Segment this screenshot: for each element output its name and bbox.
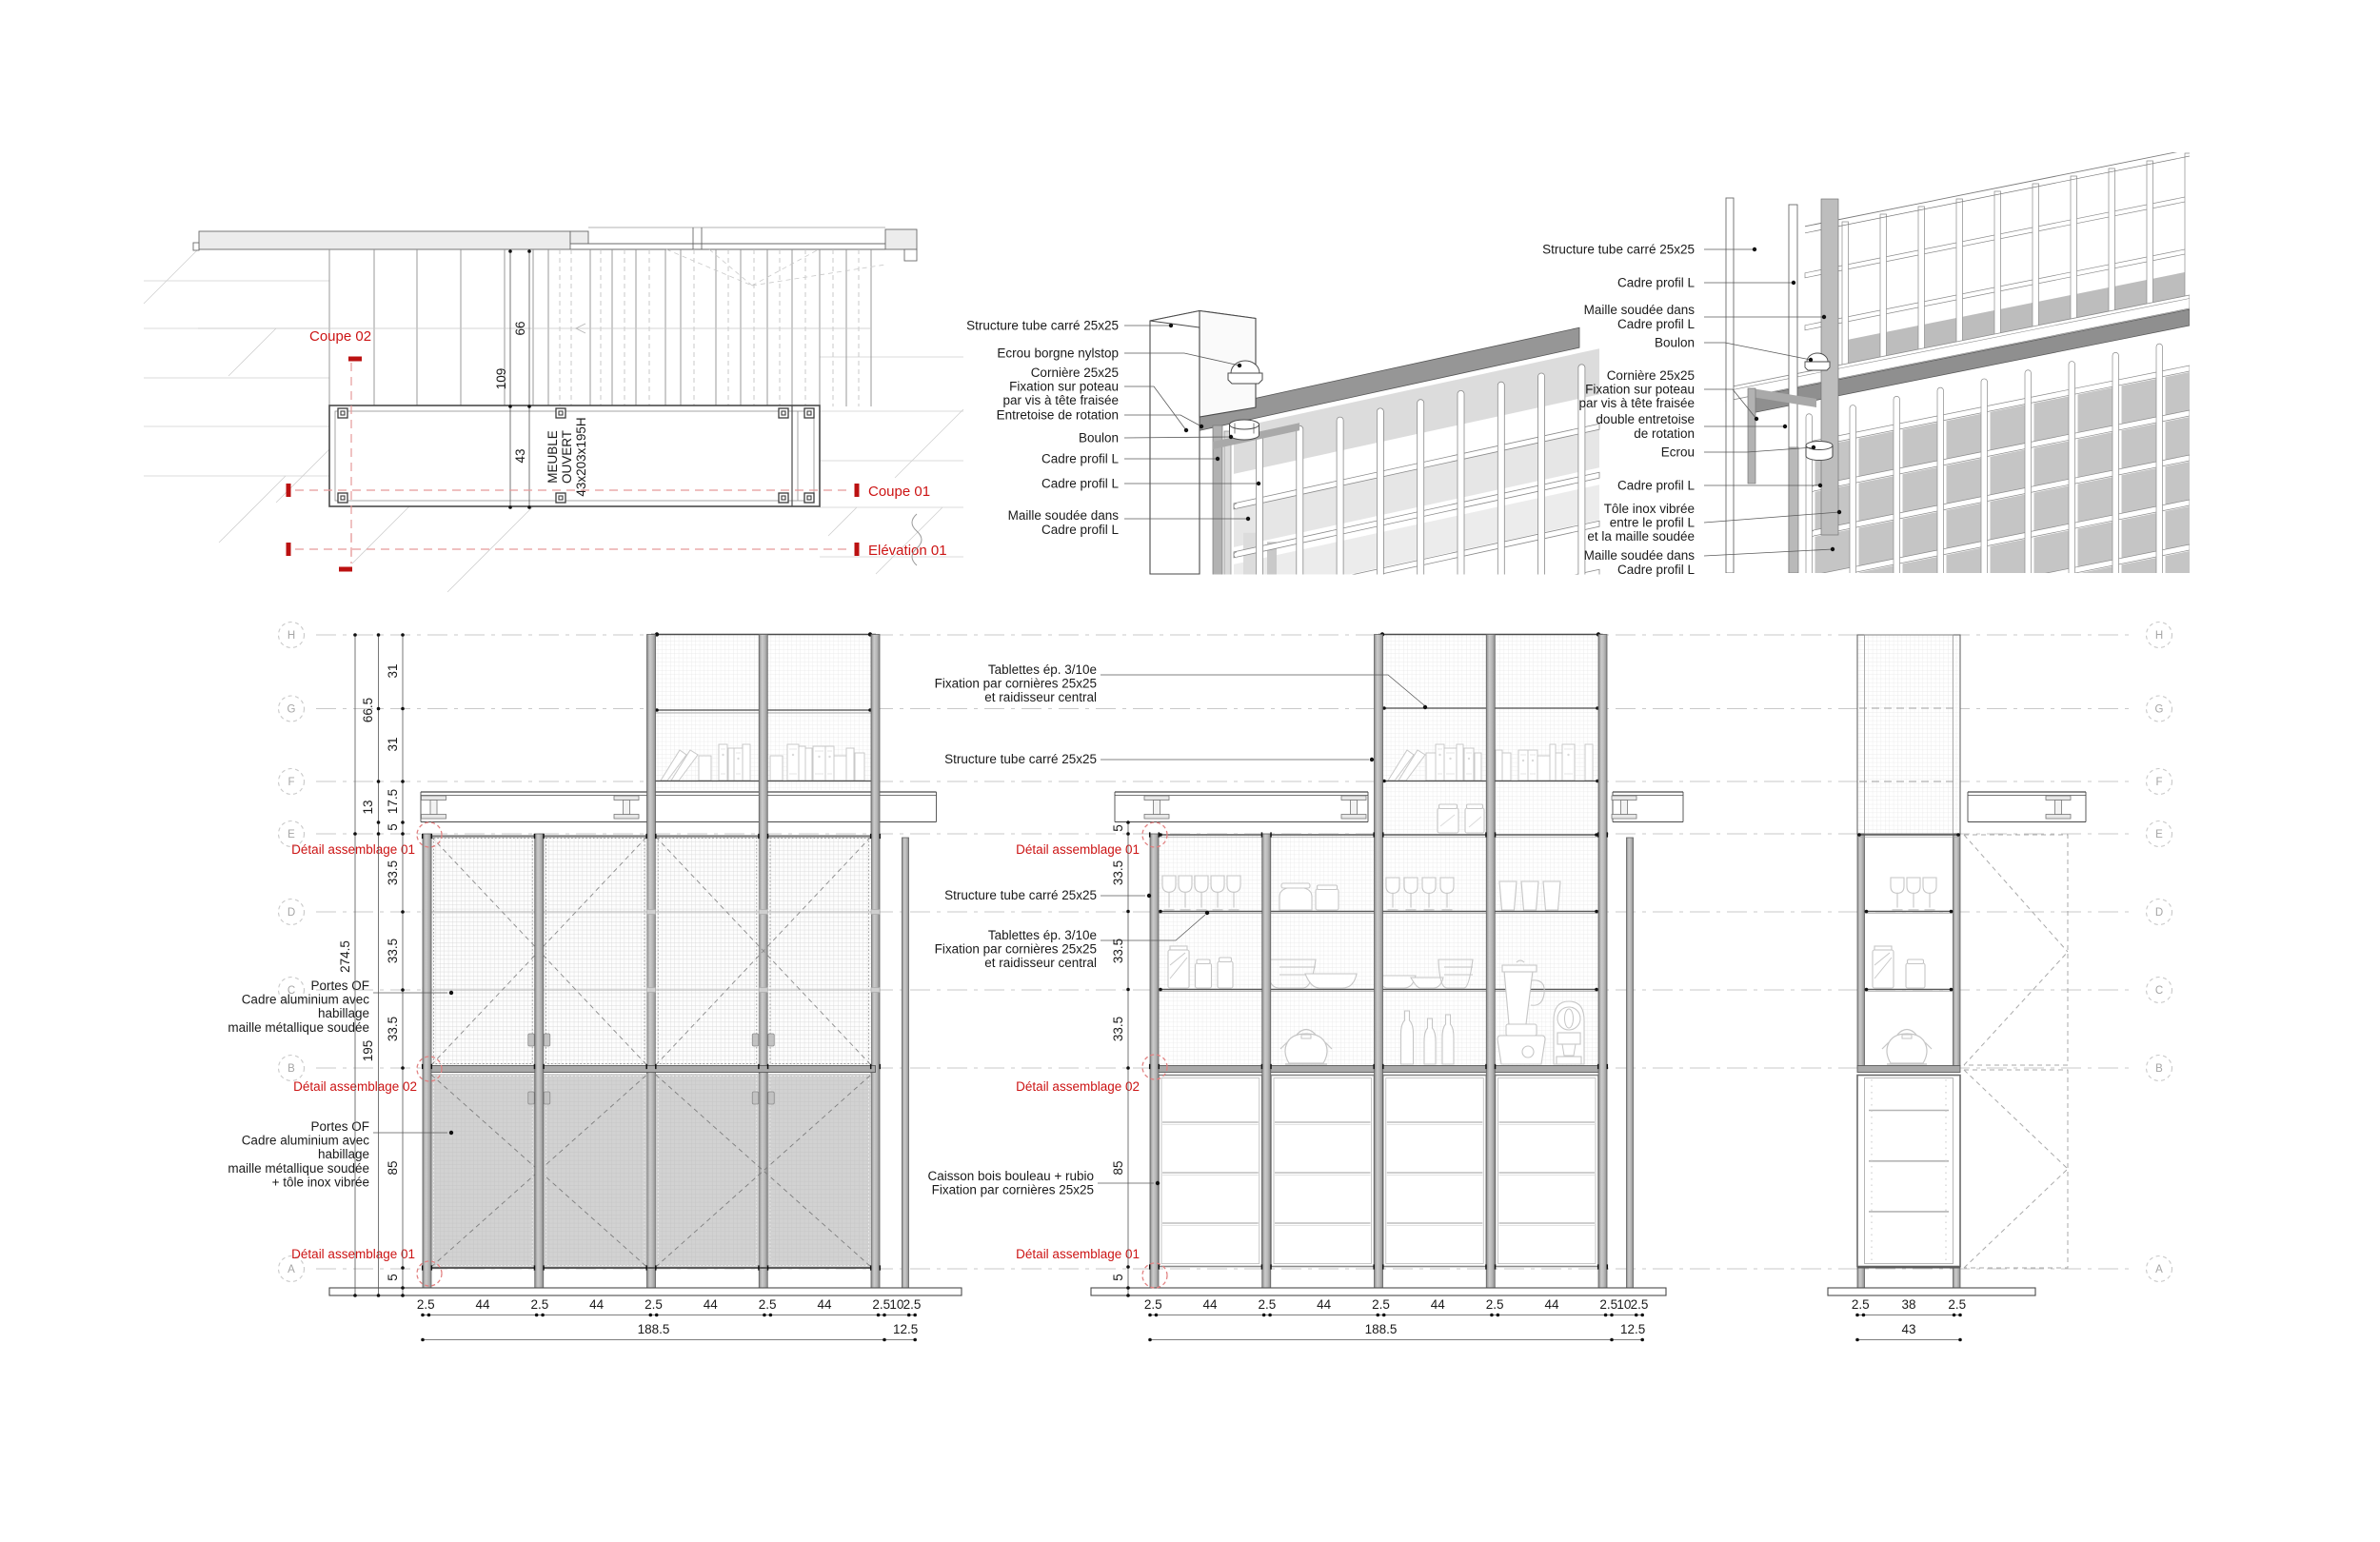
svg-text:Maille soudée dans: Maille soudée dans <box>1008 508 1120 523</box>
svg-text:12.5: 12.5 <box>893 1322 918 1336</box>
svg-text:2.5: 2.5 <box>759 1297 777 1312</box>
svg-text:G: G <box>2155 704 2164 716</box>
svg-text:E: E <box>2155 829 2163 840</box>
svg-text:Détail assemblage 01: Détail assemblage 01 <box>291 1247 415 1261</box>
svg-text:13: 13 <box>361 800 375 814</box>
svg-text:maille métallique soudée: maille métallique soudée <box>228 1161 369 1176</box>
svg-text:109: 109 <box>494 368 508 390</box>
svg-text:A: A <box>2155 1264 2163 1275</box>
svg-text:Portes OF: Portes OF <box>310 1119 369 1134</box>
svg-text:85: 85 <box>386 1160 400 1175</box>
svg-text:Boulon: Boulon <box>1079 431 1119 445</box>
svg-text:274.5: 274.5 <box>338 940 352 973</box>
svg-text:38: 38 <box>1901 1297 1915 1312</box>
svg-text:Portes OF: Portes OF <box>310 979 369 993</box>
svg-text:Détail assemblage 01: Détail assemblage 01 <box>1016 842 1140 857</box>
svg-text:D: D <box>288 907 295 919</box>
svg-text:188.5: 188.5 <box>1365 1322 1398 1336</box>
svg-text:Cadre aluminium avec: Cadre aluminium avec <box>242 1134 370 1148</box>
svg-text:G: G <box>288 704 296 716</box>
svg-text:43: 43 <box>1901 1322 1915 1336</box>
svg-text:et raidisseur central: et raidisseur central <box>984 690 1097 704</box>
svg-text:2.5: 2.5 <box>872 1297 890 1312</box>
svg-text:Maille soudée dans: Maille soudée dans <box>1584 548 1696 563</box>
svg-text:188.5: 188.5 <box>638 1322 670 1336</box>
svg-text:85: 85 <box>1111 1160 1125 1175</box>
svg-text:5: 5 <box>1111 1274 1125 1281</box>
svg-text:Tablettes ép. 3/10e: Tablettes ép. 3/10e <box>988 662 1097 677</box>
svg-text:2.5: 2.5 <box>1852 1297 1870 1312</box>
svg-text:Cadre profil L: Cadre profil L <box>1617 563 1696 577</box>
svg-text:habillage: habillage <box>318 1006 369 1020</box>
svg-text:66.5: 66.5 <box>361 698 375 722</box>
svg-text:B: B <box>2155 1063 2163 1075</box>
svg-text:2.5: 2.5 <box>417 1297 435 1312</box>
svg-text:Structure tube carré 25x25: Structure tube carré 25x25 <box>966 319 1119 333</box>
svg-text:D: D <box>2155 907 2163 919</box>
svg-text:Elévation 01: Elévation 01 <box>868 543 947 559</box>
svg-text:A: A <box>288 1264 295 1275</box>
svg-text:Cornière 25x25: Cornière 25x25 <box>1607 368 1695 383</box>
svg-text:2.5: 2.5 <box>1372 1297 1390 1312</box>
svg-text:195: 195 <box>361 1040 375 1062</box>
svg-text:Détail assemblage 01: Détail assemblage 01 <box>291 842 415 857</box>
svg-text:entre le profil L: entre le profil L <box>1610 516 1696 530</box>
svg-text:17.5: 17.5 <box>386 789 400 814</box>
svg-text:2.5: 2.5 <box>1258 1297 1276 1312</box>
svg-text:maille métallique soudée: maille métallique soudée <box>228 1020 369 1035</box>
svg-text:2.5: 2.5 <box>530 1297 548 1312</box>
svg-text:43: 43 <box>513 448 527 463</box>
svg-text:Caisson bois bouleau + rubio: Caisson bois bouleau + rubio <box>928 1169 1095 1183</box>
svg-text:10: 10 <box>889 1297 903 1312</box>
svg-text:par vis à tête fraisée: par vis à tête fraisée <box>1578 396 1695 410</box>
svg-text:Fixation sur poteau: Fixation sur poteau <box>1585 383 1695 397</box>
svg-text:Coupe 02: Coupe 02 <box>309 328 371 345</box>
svg-text:Cadre profil L: Cadre profil L <box>1041 452 1120 466</box>
svg-text:de rotation: de rotation <box>1634 426 1695 441</box>
svg-text:B: B <box>288 1063 295 1075</box>
svg-text:Fixation par cornières 25x25: Fixation par cornières 25x25 <box>935 677 1097 691</box>
svg-text:10: 10 <box>1616 1297 1631 1312</box>
svg-text:2.5: 2.5 <box>1486 1297 1504 1312</box>
svg-text:Fixation par cornières 25x25: Fixation par cornières 25x25 <box>932 1183 1094 1197</box>
svg-text:H: H <box>288 630 295 642</box>
svg-text:44: 44 <box>1431 1297 1446 1312</box>
svg-text:Tablettes ép. 3/10e: Tablettes ép. 3/10e <box>988 928 1097 942</box>
svg-text:5: 5 <box>1111 824 1125 832</box>
svg-text:44: 44 <box>1317 1297 1332 1312</box>
svg-text:Détail assemblage 01: Détail assemblage 01 <box>1016 1247 1140 1261</box>
svg-text:Entretoise de rotation: Entretoise de rotation <box>997 408 1119 423</box>
svg-text:Structure tube carré 25x25: Structure tube carré 25x25 <box>944 888 1097 902</box>
svg-text:Structure tube carré 25x25: Structure tube carré 25x25 <box>944 752 1097 766</box>
svg-text:31: 31 <box>386 663 400 678</box>
svg-text:44: 44 <box>476 1297 491 1312</box>
svg-text:Détail assemblage 02: Détail assemblage 02 <box>1016 1079 1140 1094</box>
svg-text:Coupe 01: Coupe 01 <box>868 484 930 500</box>
svg-text:Cadre profil L: Cadre profil L <box>1617 479 1696 493</box>
svg-text:5: 5 <box>386 1274 400 1281</box>
svg-text:Ecrou: Ecrou <box>1661 445 1695 460</box>
svg-text:et la maille soudée: et la maille soudée <box>1587 529 1695 544</box>
svg-text:Fixation sur poteau: Fixation sur poteau <box>1009 380 1119 394</box>
svg-text:44: 44 <box>589 1297 605 1312</box>
svg-text:E: E <box>288 829 295 840</box>
svg-text:2.5: 2.5 <box>1948 1297 1966 1312</box>
svg-text:2.5: 2.5 <box>1599 1297 1617 1312</box>
svg-text:2.5: 2.5 <box>1144 1297 1162 1312</box>
svg-text:33.5: 33.5 <box>1111 1017 1125 1041</box>
svg-text:33.5: 33.5 <box>386 1017 400 1041</box>
svg-text:Cadre profil L: Cadre profil L <box>1617 317 1696 331</box>
svg-text:44: 44 <box>1544 1297 1559 1312</box>
svg-text:33.5: 33.5 <box>386 939 400 963</box>
svg-text:Cadre profil L: Cadre profil L <box>1041 477 1120 491</box>
svg-text:F: F <box>2155 777 2162 788</box>
svg-text:OUVERT: OUVERT <box>560 430 574 484</box>
svg-text:et raidisseur central: et raidisseur central <box>984 956 1097 970</box>
svg-text:33.5: 33.5 <box>1111 939 1125 963</box>
svg-text:Cadre profil L: Cadre profil L <box>1041 523 1120 537</box>
svg-text:C: C <box>2155 985 2163 997</box>
svg-text:habillage: habillage <box>318 1147 369 1161</box>
svg-text:MEUBLE: MEUBLE <box>545 430 560 484</box>
svg-text:Maille soudée dans: Maille soudée dans <box>1584 303 1696 317</box>
svg-text:33.5: 33.5 <box>1111 860 1125 885</box>
svg-text:44: 44 <box>1203 1297 1219 1312</box>
svg-text:31: 31 <box>386 737 400 751</box>
svg-text:double entretoise: double entretoise <box>1596 412 1695 426</box>
svg-text:Structure tube carré 25x25: Structure tube carré 25x25 <box>1542 243 1695 257</box>
svg-text:66: 66 <box>513 321 527 335</box>
svg-text:H: H <box>2155 630 2163 642</box>
svg-text:Cornière 25x25: Cornière 25x25 <box>1031 366 1119 380</box>
svg-text:43x203x195H: 43x203x195H <box>574 417 588 496</box>
svg-text:2.5: 2.5 <box>1631 1297 1649 1312</box>
svg-text:F: F <box>288 777 294 788</box>
svg-text:44: 44 <box>704 1297 719 1312</box>
svg-text:Boulon: Boulon <box>1655 336 1695 350</box>
svg-text:Cadre aluminium avec: Cadre aluminium avec <box>242 993 370 1007</box>
svg-text:33.5: 33.5 <box>386 860 400 885</box>
svg-text:5: 5 <box>386 823 400 831</box>
svg-text:par vis à tête fraisée: par vis à tête fraisée <box>1002 393 1119 407</box>
svg-text:2.5: 2.5 <box>645 1297 663 1312</box>
svg-text:Fixation par cornières 25x25: Fixation par cornières 25x25 <box>935 942 1097 957</box>
svg-text:44: 44 <box>817 1297 832 1312</box>
svg-text:Cadre profil L: Cadre profil L <box>1617 276 1696 290</box>
svg-text:Tôle inox vibrée: Tôle inox vibrée <box>1604 502 1695 516</box>
svg-text:Ecrou borgne nylstop: Ecrou borgne nylstop <box>997 346 1119 361</box>
svg-text:2.5: 2.5 <box>903 1297 922 1312</box>
svg-text:12.5: 12.5 <box>1620 1322 1645 1336</box>
